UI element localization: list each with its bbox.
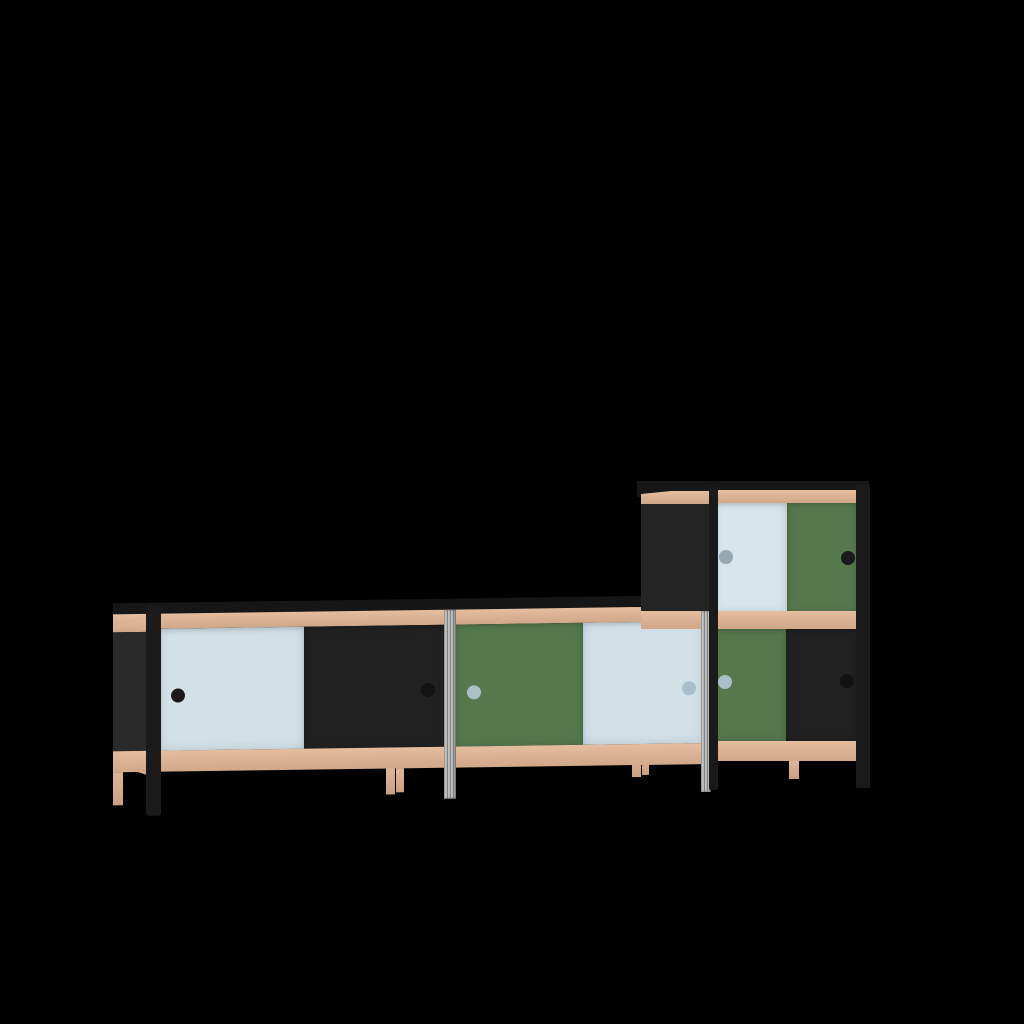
mid-wood-leg <box>642 751 649 775</box>
sliding-door-black-right-module <box>786 629 858 741</box>
sliding-door-blue-middle-module <box>583 621 703 745</box>
door-handle-hole <box>171 688 185 702</box>
right-module-wood-leg <box>789 761 799 779</box>
front-left-black-leg <box>146 605 161 816</box>
mid-wood-leg <box>632 751 641 777</box>
aluminium-post-leg <box>444 610 456 799</box>
stacked-cabinet-left-side-panel <box>641 487 711 613</box>
sliding-door-blue-left-module <box>160 627 304 751</box>
stacked-cabinet-top-rail <box>709 490 868 503</box>
mid-wood-leg <box>386 768 395 794</box>
door-handle-hole <box>841 551 855 565</box>
back-left-wood-leg <box>113 772 123 805</box>
door-handle-hole <box>840 674 854 688</box>
product-render-stage <box>0 0 1024 1024</box>
door-handle-hole <box>719 550 733 564</box>
right-module-bottom-rail <box>712 741 870 761</box>
sideboard-long-band <box>113 595 712 838</box>
side-panel-top-wood-strip <box>641 491 711 504</box>
sliding-door-green-middle-module <box>456 623 583 747</box>
side-panel-black-face <box>113 632 150 757</box>
door-handle-hole <box>718 675 732 689</box>
sliding-door-black-left-module <box>304 625 446 749</box>
junction-rail <box>641 611 869 629</box>
right-black-frame-post-leg <box>856 485 870 788</box>
sliding-door-blue-stacked-cabinet <box>714 503 787 613</box>
door-handle-hole <box>421 683 435 697</box>
door-handle-hole <box>682 681 696 695</box>
mid-wood-leg <box>396 768 404 792</box>
sliding-door-green-right-module <box>712 629 786 741</box>
black-corner-post-leg <box>709 487 718 790</box>
sliding-door-green-stacked-cabinet <box>787 503 857 613</box>
side-panel-black-face <box>641 504 711 613</box>
door-handle-hole <box>467 685 481 699</box>
